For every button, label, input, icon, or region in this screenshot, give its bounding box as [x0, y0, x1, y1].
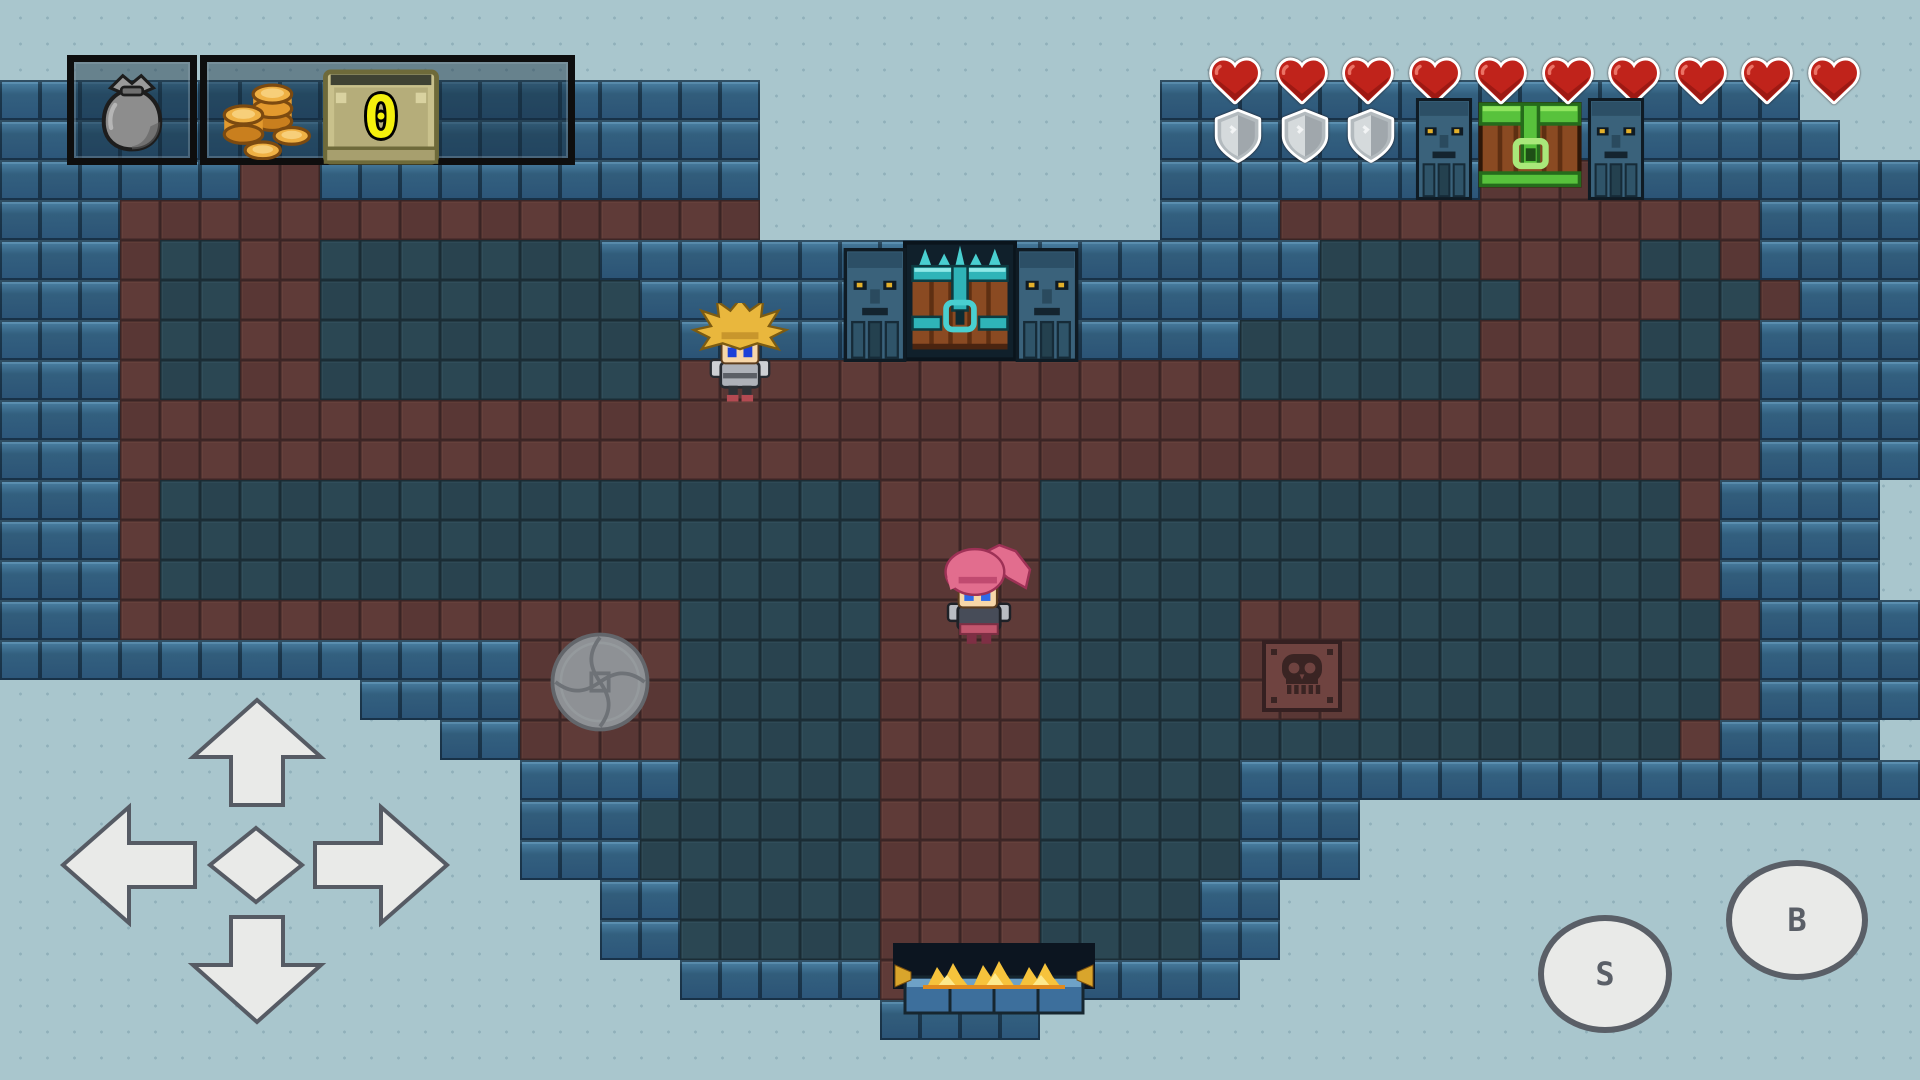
tile-background	[1800, 0, 1840, 40]
tile-wall	[1560, 760, 1600, 800]
tile-wall	[1880, 360, 1920, 400]
tile-floor	[1680, 680, 1720, 720]
tile-path	[1240, 400, 1280, 440]
tile-floor	[760, 520, 800, 560]
tile-wall	[680, 960, 720, 1000]
tile-wall	[1840, 360, 1880, 400]
tile-path	[1080, 360, 1120, 400]
tile-floor	[1160, 720, 1200, 760]
tile-floor	[1560, 720, 1600, 760]
tile-background	[1880, 880, 1920, 920]
shield-icon	[1212, 106, 1264, 166]
tile-floor	[760, 840, 800, 880]
tile-floor	[400, 480, 440, 520]
tile-path	[560, 200, 600, 240]
tile-path	[1600, 360, 1640, 400]
tile-floor	[800, 600, 840, 640]
tile-background	[1040, 80, 1080, 120]
tile-path	[800, 400, 840, 440]
tile-floor	[1640, 480, 1680, 520]
tile-path	[1760, 280, 1800, 320]
tile-floor	[760, 720, 800, 760]
tile-background	[520, 880, 560, 920]
tile-floor	[1520, 640, 1560, 680]
tile-floor	[1520, 480, 1560, 520]
tile-background	[1560, 840, 1600, 880]
tile-path	[1640, 400, 1680, 440]
tile-background	[1240, 1040, 1280, 1080]
tile-path	[880, 760, 920, 800]
tile-floor	[1400, 280, 1440, 320]
tile-wall	[80, 200, 120, 240]
tile-path	[880, 600, 920, 640]
tile-background	[1040, 160, 1080, 200]
tile-floor	[1680, 360, 1720, 400]
tile-path	[120, 240, 160, 280]
tile-background	[1400, 880, 1440, 920]
tile-wall	[1200, 280, 1240, 320]
tile-path	[1520, 400, 1560, 440]
tile-background	[920, 80, 960, 120]
tile-background	[1640, 880, 1680, 920]
tile-floor	[1120, 560, 1160, 600]
tile-path	[440, 400, 480, 440]
chest-statue-left	[1411, 98, 1477, 200]
tile-background	[1880, 720, 1920, 760]
tile-wall	[680, 240, 720, 280]
tile-path	[680, 400, 720, 440]
tile-path	[880, 880, 920, 920]
tile-background	[1080, 40, 1120, 80]
tile-path	[800, 360, 840, 400]
dpad-left-arrow[interactable]	[63, 807, 195, 923]
tile-floor	[680, 880, 720, 920]
tile-floor	[1160, 520, 1200, 560]
tile-path	[960, 480, 1000, 520]
tile-background	[1160, 0, 1200, 40]
tile-background	[880, 160, 920, 200]
tile-floor	[680, 800, 720, 840]
tile-background	[1280, 1040, 1320, 1080]
tile-floor	[680, 600, 720, 640]
stone-disc	[546, 628, 654, 736]
tile-floor	[1520, 600, 1560, 640]
tile-floor	[1600, 720, 1640, 760]
tile-path	[760, 400, 800, 440]
tile-floor	[520, 520, 560, 560]
tile-wall	[1720, 480, 1760, 520]
tile-background	[880, 120, 920, 160]
tile-floor	[480, 280, 520, 320]
tile-path	[200, 200, 240, 240]
tile-background	[0, 40, 40, 80]
tile-background	[920, 0, 960, 40]
tile-background	[600, 1000, 640, 1040]
tile-floor	[680, 920, 720, 960]
tile-background	[840, 1040, 880, 1080]
tile-background	[1000, 40, 1040, 80]
tile-floor	[840, 520, 880, 560]
dpad-down-arrow[interactable]	[193, 917, 321, 1022]
tile-wall	[1880, 600, 1920, 640]
tile-path	[1520, 200, 1560, 240]
tile-floor	[1400, 600, 1440, 640]
tile-wall	[80, 440, 120, 480]
tile-path	[720, 400, 760, 440]
tile-background	[560, 960, 600, 1000]
tile-floor	[520, 560, 560, 600]
tile-floor	[840, 800, 880, 840]
tile-wall	[1760, 480, 1800, 520]
tile-floor	[800, 560, 840, 600]
tile-floor	[1480, 680, 1520, 720]
tile-wall	[1240, 200, 1280, 240]
tile-floor	[1320, 360, 1360, 400]
tile-path	[960, 400, 1000, 440]
tile-wall	[0, 600, 40, 640]
tile-wall	[1880, 400, 1920, 440]
tile-background	[1480, 920, 1520, 960]
tile-floor	[1680, 640, 1720, 680]
tile-floor	[320, 360, 360, 400]
tile-path	[1720, 600, 1760, 640]
tile-wall	[640, 760, 680, 800]
tile-path	[280, 200, 320, 240]
tile-floor	[1440, 280, 1480, 320]
tile-floor	[800, 720, 840, 760]
tile-path	[520, 440, 560, 480]
tile-wall	[1880, 280, 1920, 320]
tile-wall	[1520, 760, 1560, 800]
tile-wall	[80, 600, 120, 640]
tile-floor	[200, 320, 240, 360]
tile-background	[1120, 0, 1160, 40]
tile-wall	[40, 200, 80, 240]
tile-wall	[520, 840, 560, 880]
tile-path	[1400, 400, 1440, 440]
tile-floor	[600, 320, 640, 360]
tile-wall	[480, 160, 520, 200]
tile-floor	[1200, 840, 1240, 880]
tile-wall	[1080, 280, 1120, 320]
tile-path	[1440, 440, 1480, 480]
tile-floor	[1080, 800, 1120, 840]
tile-wall	[40, 480, 80, 520]
tile-wall	[1720, 760, 1760, 800]
tile-wall	[1240, 160, 1280, 200]
tile-wall	[560, 760, 600, 800]
tile-path	[1000, 880, 1040, 920]
tile-wall	[1760, 200, 1800, 240]
tile-floor	[800, 520, 840, 560]
tile-path	[760, 440, 800, 480]
tile-floor	[600, 520, 640, 560]
tile-floor	[1040, 800, 1080, 840]
tile-floor	[1560, 600, 1600, 640]
tile-background	[1880, 800, 1920, 840]
tile-wall	[40, 640, 80, 680]
tile-wall	[800, 320, 840, 360]
tile-wall	[1760, 160, 1800, 200]
tile-path	[480, 440, 520, 480]
tile-background	[800, 120, 840, 160]
tile-wall	[1160, 160, 1200, 200]
heart-icon	[1341, 56, 1395, 106]
tile-path	[960, 760, 1000, 800]
tile-floor	[480, 360, 520, 400]
tile-background	[1680, 960, 1720, 1000]
tile-wall	[1280, 800, 1320, 840]
tile-floor	[1200, 640, 1240, 680]
tile-background	[800, 160, 840, 200]
tile-background	[640, 960, 680, 1000]
tile-wall	[1800, 760, 1840, 800]
tile-background	[720, 40, 760, 80]
tile-wall	[1680, 120, 1720, 160]
tile-floor	[400, 240, 440, 280]
tile-wall	[80, 560, 120, 600]
tile-wall	[1320, 840, 1360, 880]
tile-wall	[520, 160, 560, 200]
tile-background	[1400, 1040, 1440, 1080]
tile-floor	[1080, 600, 1120, 640]
tile-floor	[760, 760, 800, 800]
tile-path	[1040, 360, 1080, 400]
tile-background	[680, 40, 720, 80]
tile-background	[1200, 0, 1240, 40]
tile-background	[440, 0, 480, 40]
tile-background	[880, 80, 920, 120]
tile-wall	[1800, 600, 1840, 640]
tile-path	[1520, 240, 1560, 280]
tile-wall	[40, 360, 80, 400]
tile-background	[640, 1000, 680, 1040]
tile-background	[0, 880, 40, 920]
tile-background	[0, 960, 40, 1000]
tile-wall	[1800, 720, 1840, 760]
tile-path	[600, 200, 640, 240]
tile-path	[1480, 360, 1520, 400]
tile-background	[1440, 0, 1480, 40]
tile-floor	[360, 520, 400, 560]
tile-floor	[360, 320, 400, 360]
tile-floor	[1400, 520, 1440, 560]
tile-floor	[1120, 600, 1160, 640]
tile-floor	[1400, 560, 1440, 600]
tile-floor	[240, 560, 280, 600]
tile-floor	[1560, 480, 1600, 520]
tile-path	[680, 200, 720, 240]
tile-path	[1600, 200, 1640, 240]
tile-floor	[320, 240, 360, 280]
tile-background	[1640, 0, 1680, 40]
dpad-up-arrow[interactable]	[193, 700, 321, 805]
tile-floor	[1280, 720, 1320, 760]
tile-floor	[1640, 720, 1680, 760]
tile-wall	[1600, 760, 1640, 800]
tile-floor	[1600, 680, 1640, 720]
tile-floor	[1480, 520, 1520, 560]
tile-wall	[520, 800, 560, 840]
tile-wall	[40, 440, 80, 480]
tile-background	[1080, 120, 1120, 160]
tile-path	[360, 400, 400, 440]
tile-wall	[1360, 160, 1400, 200]
tile-path	[1520, 320, 1560, 360]
tile-path	[560, 440, 600, 480]
tile-background	[1840, 960, 1880, 1000]
tile-floor	[1480, 720, 1520, 760]
tile-path	[960, 720, 1000, 760]
tile-wall	[680, 160, 720, 200]
tile-path	[1160, 360, 1200, 400]
tile-wall	[80, 280, 120, 320]
tile-background	[1880, 480, 1920, 520]
tile-floor	[1560, 560, 1600, 600]
b-button[interactable]: B	[1726, 860, 1868, 980]
tile-path	[960, 840, 1000, 880]
tile-background	[1160, 1040, 1200, 1080]
tile-wall	[680, 80, 720, 120]
tile-path	[160, 200, 200, 240]
tile-floor	[840, 480, 880, 520]
tile-path	[200, 400, 240, 440]
tile-path	[1000, 480, 1040, 520]
tile-wall	[1280, 760, 1320, 800]
tile-path	[240, 160, 280, 200]
tile-wall	[1800, 640, 1840, 680]
tile-background	[1440, 1000, 1480, 1040]
tile-floor	[360, 480, 400, 520]
tile-floor	[1600, 480, 1640, 520]
tile-floor	[680, 720, 720, 760]
tile-background	[1840, 800, 1880, 840]
tile-background	[1800, 1000, 1840, 1040]
tile-path	[1120, 400, 1160, 440]
tile-background	[960, 120, 1000, 160]
tile-wall	[1840, 320, 1880, 360]
dpad-right-arrow[interactable]	[315, 807, 447, 923]
tile-path	[920, 880, 960, 920]
tile-background	[1640, 1040, 1680, 1080]
tile-background	[840, 1000, 880, 1040]
tile-wall	[40, 520, 80, 560]
tile-path	[720, 440, 760, 480]
tile-path	[320, 440, 360, 480]
tile-background	[1800, 800, 1840, 840]
tile-path	[1280, 200, 1320, 240]
tile-floor	[720, 840, 760, 880]
dpad-center[interactable]	[210, 828, 302, 902]
tile-wall	[1840, 200, 1880, 240]
tile-wall	[80, 240, 120, 280]
tile-path	[1600, 400, 1640, 440]
tile-floor	[720, 520, 760, 560]
tile-path	[1720, 360, 1760, 400]
tile-background	[1760, 800, 1800, 840]
tile-path	[1000, 720, 1040, 760]
tile-floor	[320, 560, 360, 600]
tile-path	[520, 200, 560, 240]
tile-background	[1560, 800, 1600, 840]
tile-floor	[1120, 640, 1160, 680]
tile-wall	[1840, 720, 1880, 760]
bag-icon	[88, 68, 176, 154]
tile-path	[1280, 400, 1320, 440]
tile-wall	[0, 240, 40, 280]
tile-floor	[560, 360, 600, 400]
tile-floor	[1480, 280, 1520, 320]
tile-background	[800, 1000, 840, 1040]
tile-path	[1000, 800, 1040, 840]
tile-floor	[640, 800, 680, 840]
tile-wall	[1280, 840, 1320, 880]
tile-background	[1840, 1000, 1880, 1040]
tile-floor	[1440, 320, 1480, 360]
tile-wall	[120, 160, 160, 200]
tile-wall	[720, 120, 760, 160]
tile-wall	[1880, 160, 1920, 200]
s-button[interactable]: S	[1538, 915, 1672, 1033]
tile-floor	[480, 240, 520, 280]
tile-background	[1880, 1000, 1920, 1040]
shield-icon	[1345, 106, 1397, 166]
tile-path	[1680, 440, 1720, 480]
tile-floor	[440, 240, 480, 280]
tile-wall	[480, 720, 520, 760]
tile-wall	[80, 520, 120, 560]
tile-wall	[1760, 560, 1800, 600]
tile-wall	[720, 160, 760, 200]
tile-background	[1880, 960, 1920, 1000]
tile-floor	[680, 680, 720, 720]
tile-background	[1880, 840, 1920, 880]
tile-wall	[1760, 520, 1800, 560]
tile-path	[1600, 320, 1640, 360]
tile-wall	[1120, 320, 1160, 360]
tile-path	[1200, 400, 1240, 440]
tile-background	[1640, 840, 1680, 880]
tile-floor	[400, 560, 440, 600]
tile-path	[1600, 280, 1640, 320]
tile-floor	[400, 520, 440, 560]
tile-background	[1480, 800, 1520, 840]
tile-wall	[0, 640, 40, 680]
tile-floor	[320, 480, 360, 520]
tile-floor	[1440, 480, 1480, 520]
tile-wall	[40, 600, 80, 640]
tile-background	[1320, 920, 1360, 960]
tile-background	[1760, 1040, 1800, 1080]
tile-floor	[1280, 560, 1320, 600]
tile-wall	[1160, 200, 1200, 240]
tile-floor	[440, 280, 480, 320]
tile-floor	[1080, 480, 1120, 520]
tile-wall	[1720, 160, 1760, 200]
tile-floor	[1440, 240, 1480, 280]
tile-path	[1520, 360, 1560, 400]
tile-path	[640, 400, 680, 440]
tile-floor	[200, 280, 240, 320]
tile-floor	[1200, 600, 1240, 640]
tile-wall	[1160, 320, 1200, 360]
tile-wall	[1840, 280, 1880, 320]
tile-floor	[360, 360, 400, 400]
tile-path	[120, 200, 160, 240]
tile-path	[1320, 600, 1360, 640]
tile-floor	[720, 480, 760, 520]
heart-icon	[1208, 56, 1262, 106]
